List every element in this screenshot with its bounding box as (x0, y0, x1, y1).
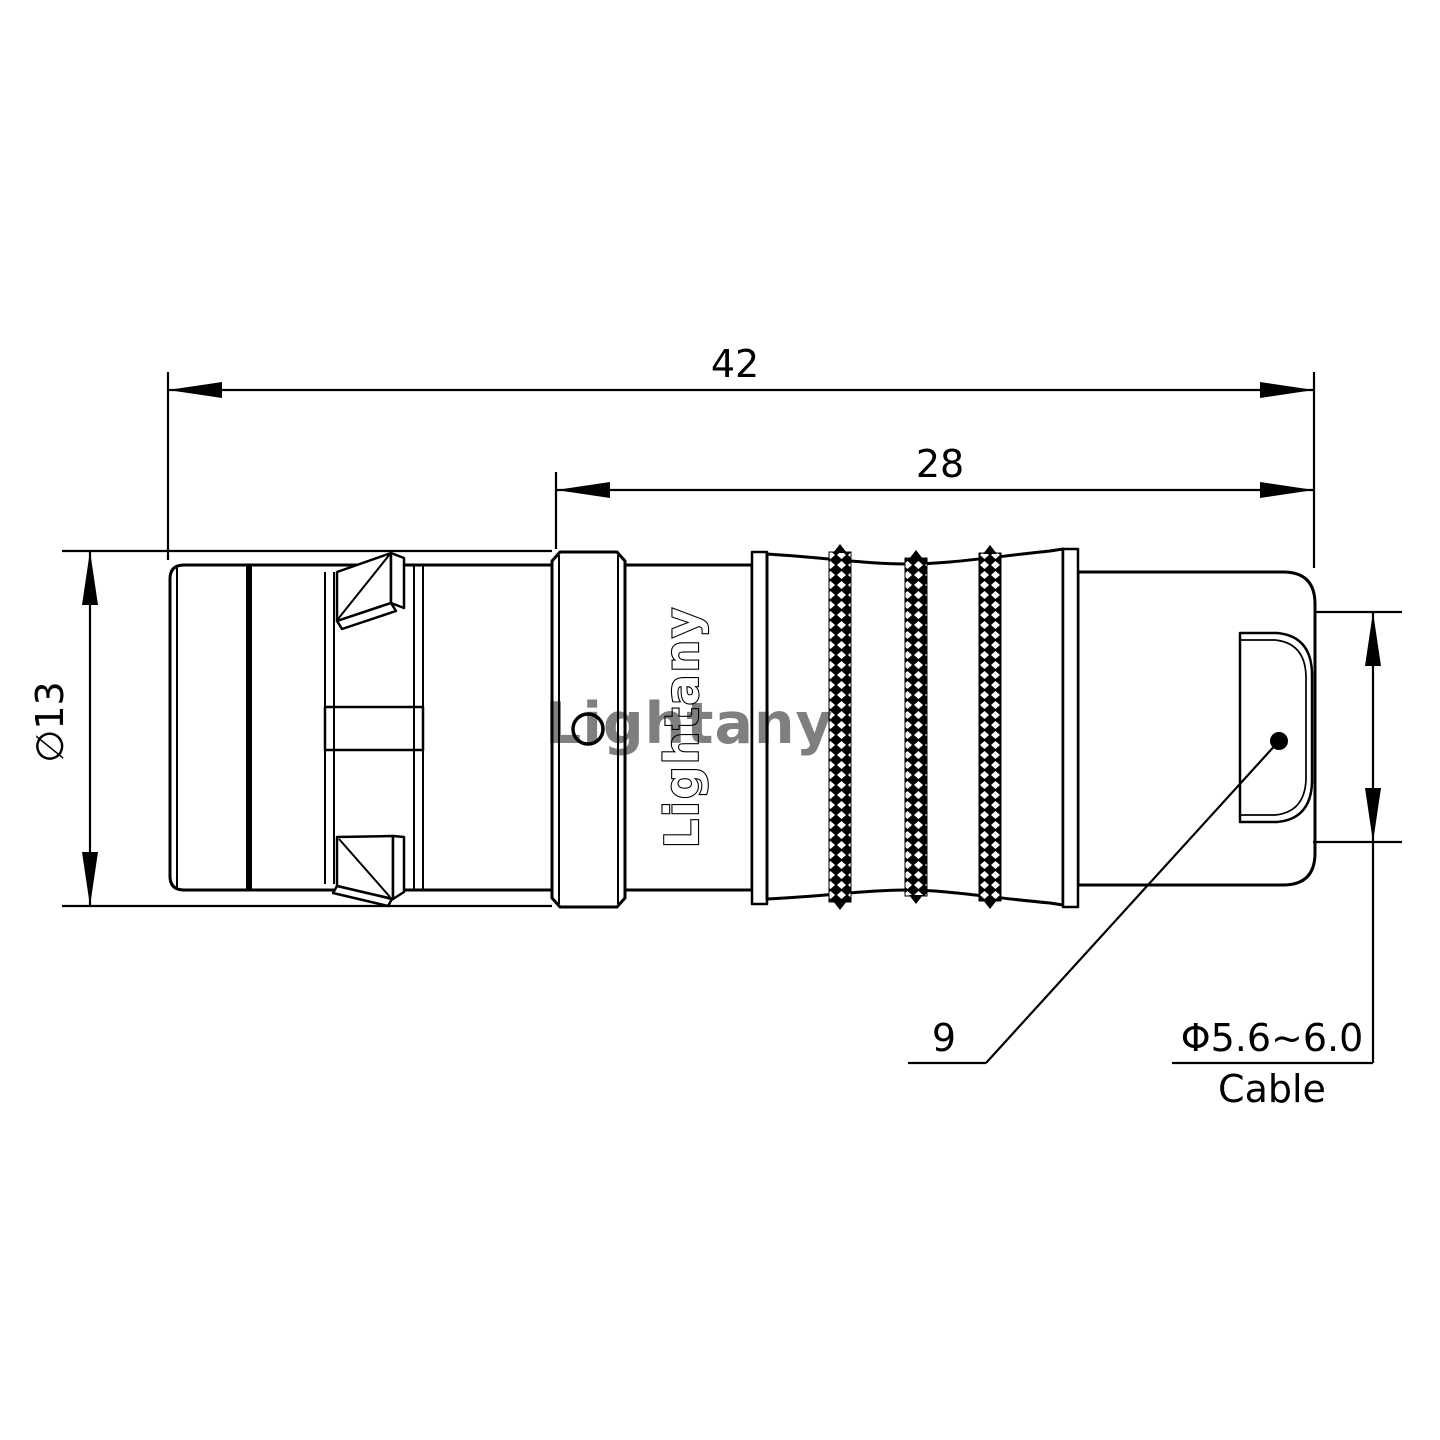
cable-bushing (1240, 633, 1312, 822)
dimension-overall-length: 42 (168, 342, 1314, 568)
arrowhead-right (1260, 382, 1314, 398)
latch-clip-bottom (333, 836, 404, 906)
callout-dot (1270, 732, 1288, 750)
arrowhead-bottom (82, 852, 98, 906)
dim-rear-length-value: 28 (916, 442, 964, 486)
watermark: Lightany (545, 691, 834, 757)
arrowhead-right (1260, 482, 1314, 498)
knurl-band-3 (979, 545, 1001, 909)
front-sleeve-black-band (246, 565, 252, 890)
knurl-band-2 (905, 550, 927, 904)
dim-overall-length-value: 42 (711, 342, 759, 386)
technical-drawing-page: Lightany 42 28 ∅13 Φ5.6~6.0 Cable (0, 0, 1440, 1440)
dimension-rear-section-length: 28 (556, 442, 1314, 549)
dim-shell-diameter-value: ∅13 (28, 681, 72, 762)
cable-diameter-value: Φ5.6~6.0 (1181, 1016, 1364, 1060)
arrowhead-left (168, 382, 222, 398)
latch-window (325, 707, 423, 750)
connector-technical-drawing: Lightany 42 28 ∅13 Φ5.6~6.0 Cable (0, 0, 1440, 1440)
arrowhead-up (1365, 612, 1381, 666)
grip-right-flange (1063, 549, 1078, 907)
item-9-value: 9 (932, 1016, 956, 1060)
arrowhead-top (82, 551, 98, 605)
arrowhead-left (556, 482, 610, 498)
cable-caption: Cable (1218, 1067, 1326, 1111)
arrowhead-down (1365, 788, 1381, 842)
